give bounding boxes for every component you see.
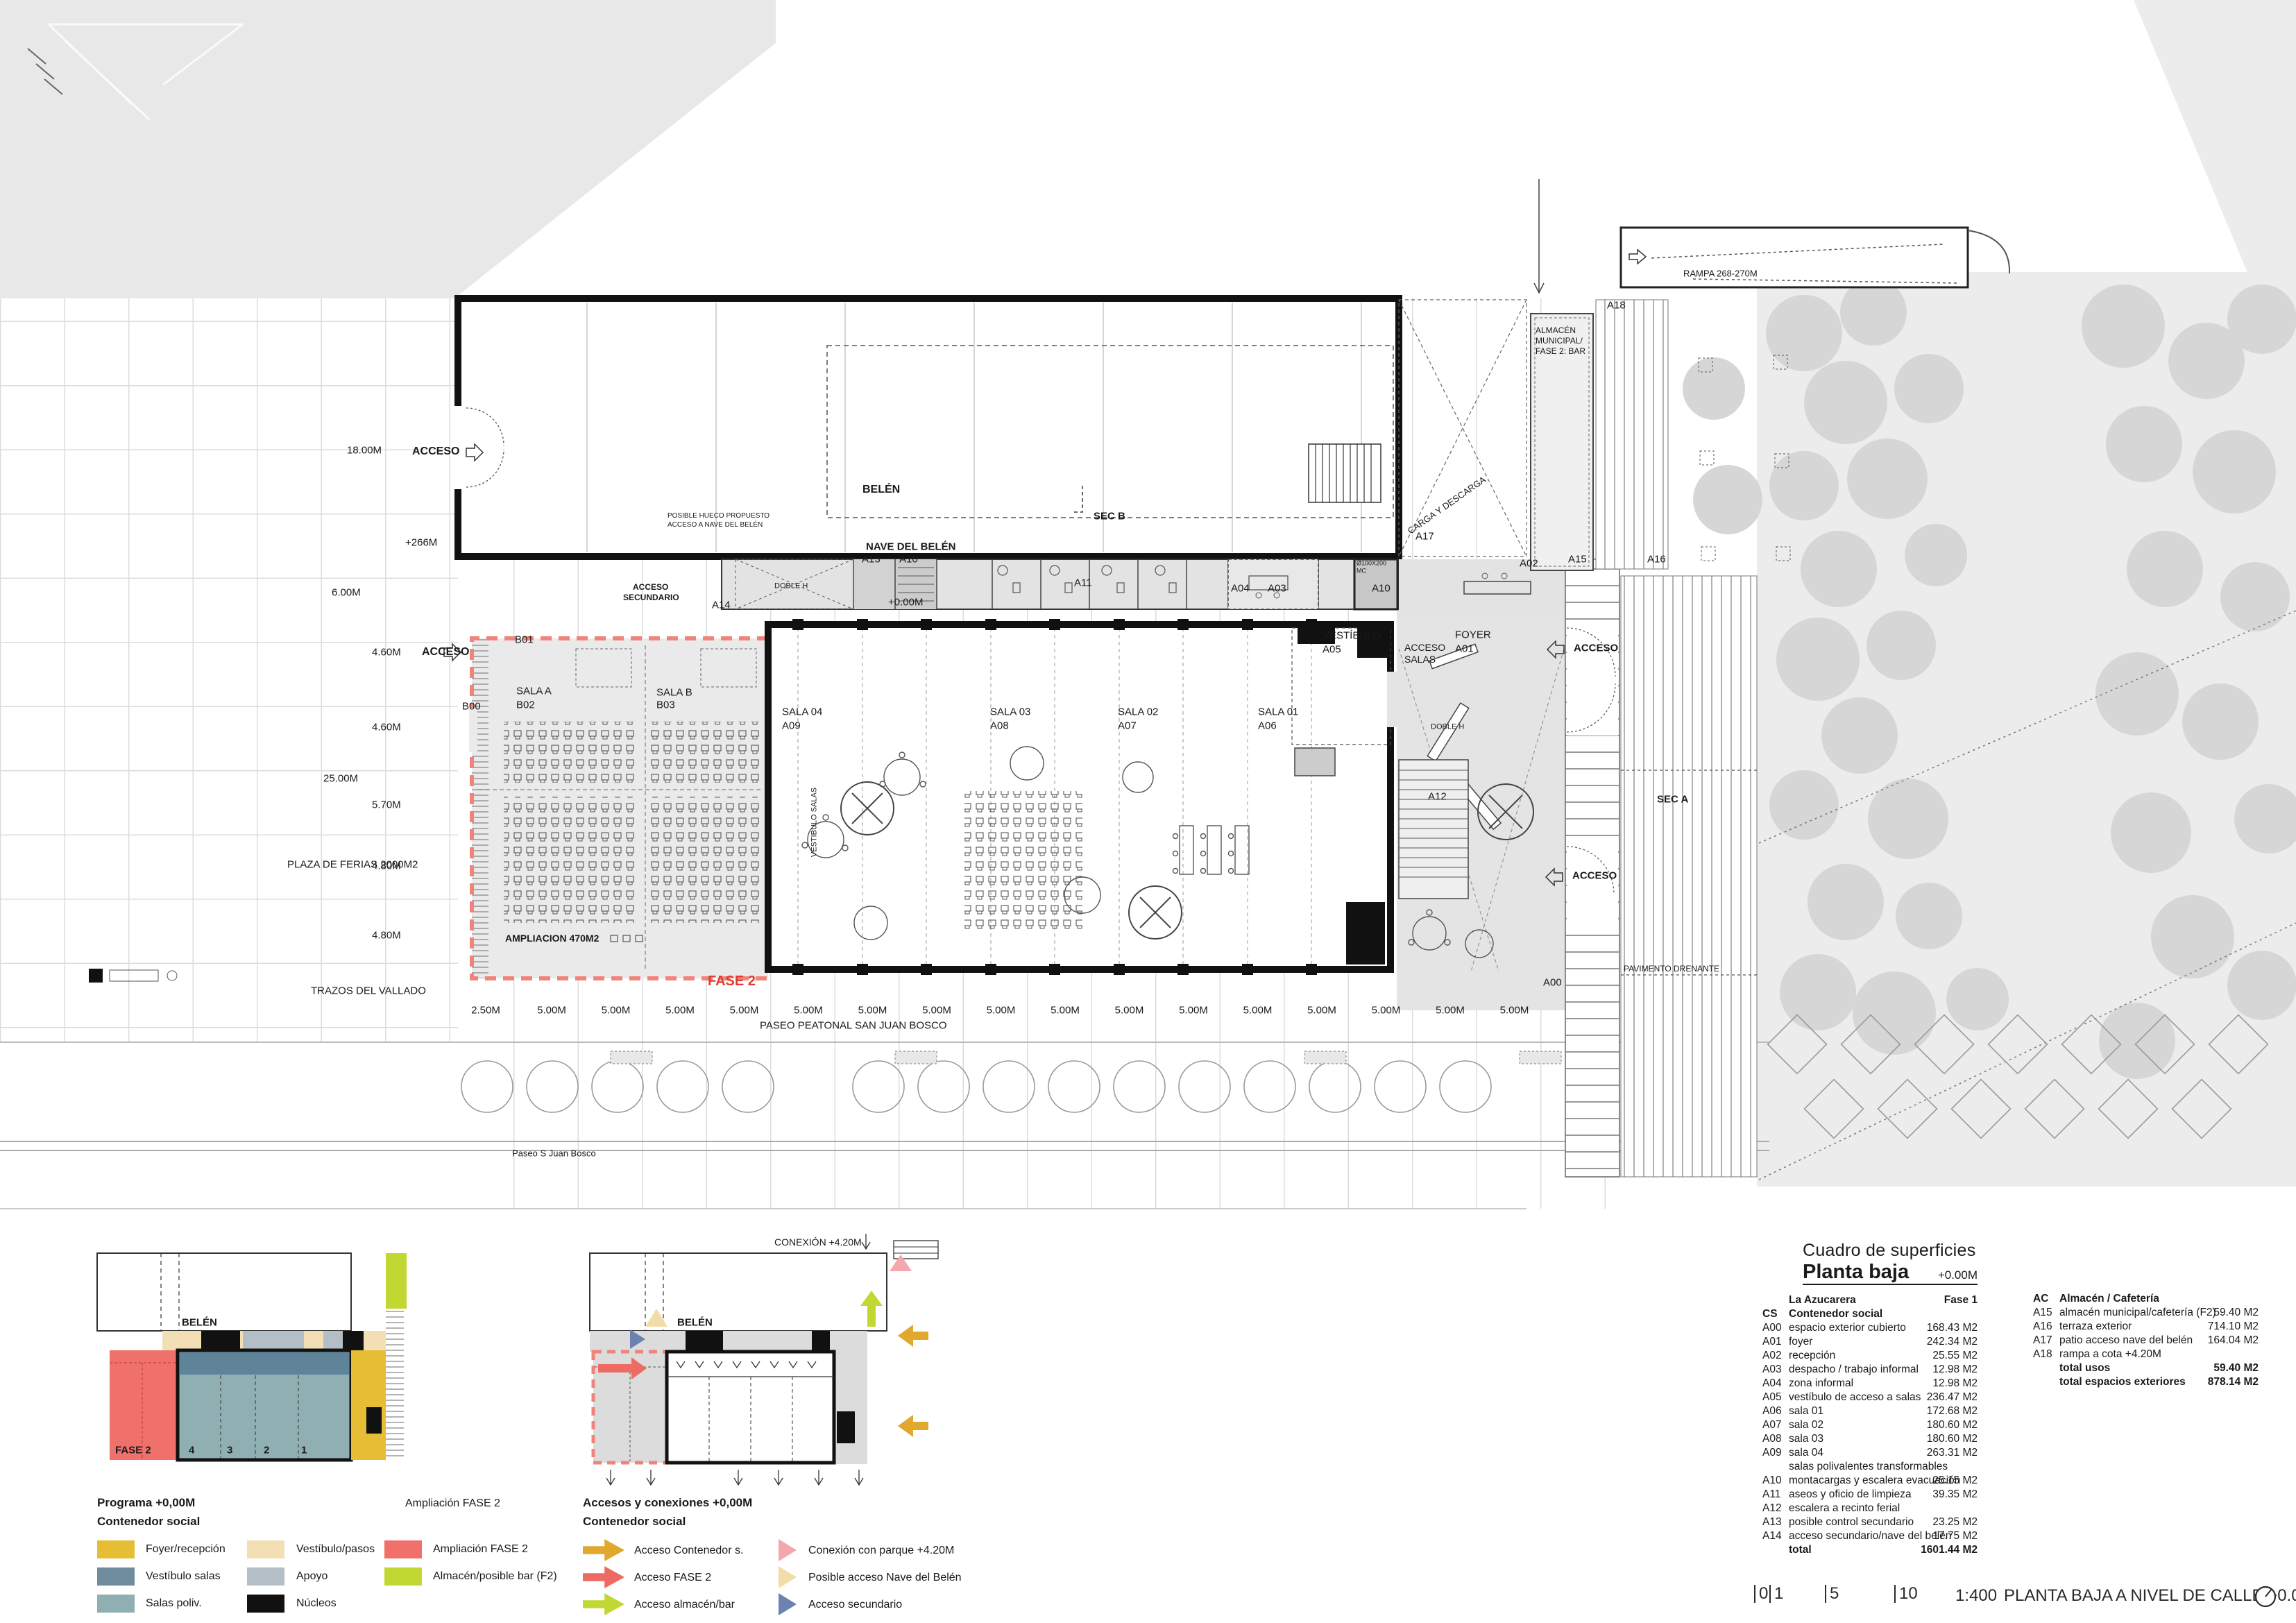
row-code: A16 [2033, 1320, 2054, 1334]
area-table-row: A16terraza exterior714.10 M2 [2033, 1320, 2259, 1334]
legend-item: Acceso secundario [779, 1596, 1027, 1615]
row-code: A01 [1762, 1335, 1783, 1349]
area-table: Cuadro de superficies Planta baja +0.00M… [1762, 1241, 1991, 1284]
row-label: terraza exterior [2059, 1320, 2132, 1334]
area-table-row: A06sala 01172.68 M2 [1762, 1404, 1978, 1418]
row-value: 1601.44 M2 [1921, 1543, 1978, 1557]
area-table-row: A05vestíbulo de acceso a salas236.47 M2 [1762, 1391, 1978, 1404]
row-value: 12.98 M2 [1932, 1363, 1978, 1377]
area-table-row: A01foyer242.34 M2 [1762, 1335, 1978, 1349]
area-table-row: A11aseos y oficio de limpieza39.35 M2 [1762, 1488, 1978, 1502]
area-table-row: A17patio acceso nave del belén164.04 M2 [2033, 1334, 2259, 1348]
row-label: total espacios exteriores [2059, 1375, 2186, 1389]
area-table-row: A14acceso secundario/nave del belén17.75… [1762, 1529, 1978, 1543]
row-label: La Azucarera [1789, 1293, 1856, 1307]
row-label: acceso secundario/nave del belén [1789, 1529, 1951, 1543]
area-table-row: A09sala 04263.31 M2 [1762, 1446, 1978, 1460]
acceso-contenedor-arrow-icon [898, 1415, 928, 1437]
mini-diagram-access [590, 1234, 938, 1485]
access-arrow-icon [583, 1566, 624, 1588]
row-code: A00 [1762, 1321, 1783, 1335]
row-code: AC [2033, 1292, 2054, 1306]
row-value: 59.40 M2 [2213, 1306, 2259, 1320]
scale-ratio: 1:400 [1955, 1586, 1997, 1606]
legend-accesos: Accesos y conexiones +0,00M Contenedor s… [583, 1493, 1027, 1622]
row-value: 39.35 M2 [1932, 1488, 1978, 1502]
legend-label: Acceso Contenedor s. [634, 1545, 743, 1557]
legend-swatch [384, 1567, 422, 1586]
plan-sheet: 18.00MACCESO+266M6.00M4.60MACCESOB01B00S… [0, 0, 2296, 1623]
row-label: sala 01 [1789, 1404, 1823, 1418]
area-table-row: total1601.44 M2 [1762, 1543, 1978, 1557]
legend-label: Conexión con parque +4.20M [808, 1545, 954, 1557]
row-label: aseos y oficio de limpieza [1789, 1488, 1912, 1502]
row-value: 168.43 M2 [1927, 1321, 1978, 1335]
montacargas-a10 [1354, 559, 1397, 609]
row-code: A04 [1762, 1377, 1783, 1391]
row-value: 17.75 M2 [1932, 1529, 1978, 1543]
row-label: posible control secundario [1789, 1515, 1914, 1529]
row-code: A05 [1762, 1391, 1783, 1404]
row-code: A07 [1762, 1418, 1783, 1432]
scale-tick: 5 [1825, 1585, 1839, 1603]
row-value: 180.60 M2 [1927, 1418, 1978, 1432]
row-label: recepción [1789, 1349, 1835, 1363]
access-arrow-icon [583, 1539, 624, 1561]
ramp-a18 [1534, 179, 2009, 293]
cs-rows: La AzucareraFase 1CSContenedor socialA00… [1762, 1293, 1978, 1557]
row-label: rampa a cota +4.20M [2059, 1348, 2161, 1361]
row-value: 12.98 M2 [1932, 1377, 1978, 1391]
legend-label: Acceso secundario [808, 1599, 902, 1611]
acceso-contenedor-arrow-icon [898, 1325, 928, 1347]
area-table-row: A15almacén municipal/cafetería (F2)59.40… [2033, 1306, 2259, 1320]
row-code: A15 [2033, 1306, 2054, 1320]
row-code: A12 [1762, 1502, 1783, 1515]
area-table-row: A18rampa a cota +4.20M [2033, 1348, 2259, 1361]
legend-label: Ampliación FASE 2 [433, 1543, 528, 1556]
ac-rows: ACAlmacén / CafeteríaA15almacén municipa… [2033, 1292, 2259, 1389]
row-code: A02 [1762, 1349, 1783, 1363]
row-label: escalera a recinto ferial [1789, 1502, 1900, 1515]
row-code: A18 [2033, 1348, 2054, 1361]
row-label: despacho / trabajo informal [1789, 1363, 1919, 1377]
scale-tick: 10 [1894, 1585, 1918, 1603]
row-code: A06 [1762, 1404, 1783, 1418]
area-table-level: +0.00M [1908, 1268, 1978, 1282]
area-table-row: CSContenedor social [1762, 1307, 1978, 1321]
row-label: vestíbulo de acceso a salas [1789, 1391, 1921, 1404]
row-label: foyer [1789, 1335, 1812, 1349]
area-table-row: A00espacio exterior cubierto168.43 M2 [1762, 1321, 1978, 1335]
area-table-row: total usos59.40 M2 [2033, 1361, 2259, 1375]
row-label: Contenedor social [1789, 1307, 1882, 1321]
scale-tick: 1 [1769, 1585, 1783, 1603]
area-table-title: Cuadro de superficies [1803, 1241, 1991, 1261]
mini-diagram-program [97, 1253, 407, 1460]
context-upper-left [0, 0, 776, 298]
row-value: 25.15 M2 [1932, 1474, 1978, 1488]
main-hall [768, 619, 1397, 975]
row-label: espacio exterior cubierto [1789, 1321, 1906, 1335]
area-table-row: A03despacho / trabajo informal12.98 M2 [1762, 1363, 1978, 1377]
row-value: 25.55 M2 [1932, 1349, 1978, 1363]
connection-triangle-icon [779, 1566, 797, 1588]
legend-accesos-title: Accesos y conexiones +0,00M Contenedor s… [583, 1493, 1027, 1531]
row-value: 23.25 M2 [1932, 1515, 1978, 1529]
north-circle-icon [2254, 1585, 2277, 1608]
row-label: Almacén / Cafetería [2059, 1292, 2159, 1306]
area-table-row: A07sala 02180.60 M2 [1762, 1418, 1978, 1432]
legend-item: Conexión con parque +4.20M [779, 1542, 1027, 1561]
connection-triangle-icon [779, 1593, 797, 1615]
row-value: 59.40 M2 [2213, 1361, 2259, 1375]
legend-swatch [247, 1595, 284, 1613]
row-label: salas polivalentes transformables [1789, 1460, 1948, 1474]
row-code: A08 [1762, 1432, 1783, 1446]
row-code: A10 [1762, 1474, 1783, 1488]
area-table-row: A13posible control secundario23.25 M2 [1762, 1515, 1978, 1529]
row-value: 172.68 M2 [1927, 1404, 1978, 1418]
legend-label: Acceso almacén/bar [634, 1599, 735, 1611]
legend-item: Posible acceso Nave del Belén [779, 1569, 1027, 1588]
area-table-row: A12escalera a recinto ferial [1762, 1502, 1978, 1515]
access-arrow-icon [583, 1593, 624, 1615]
legend-label: Núcleos [296, 1597, 337, 1610]
nave-del-belen-building [452, 298, 1399, 556]
row-label: sala 02 [1789, 1418, 1823, 1432]
legend-label: Posible acceso Nave del Belén [808, 1572, 962, 1584]
row-label: total [1789, 1543, 1812, 1557]
row-code: A13 [1762, 1515, 1783, 1529]
connection-triangle-icon [779, 1539, 797, 1561]
legend-label: Acceso FASE 2 [634, 1572, 711, 1584]
door-to-foyer-gap [1387, 672, 1397, 727]
park-landscape [1683, 0, 2296, 1187]
area-table-row: salas polivalentes transformables [1762, 1460, 1978, 1474]
row-value: 164.04 M2 [2208, 1334, 2259, 1348]
row-label: total usos [2059, 1361, 2110, 1375]
row-code: A14 [1762, 1529, 1783, 1543]
row-value: 236.47 M2 [1927, 1391, 1978, 1404]
legend-item: Núcleos [97, 1595, 555, 1614]
area-table-row: A10montacargas y escalera evacuación25.1… [1762, 1474, 1978, 1488]
row-value: 714.10 M2 [2208, 1320, 2259, 1334]
area-table-row: A02recepción25.55 M2 [1762, 1349, 1978, 1363]
area-table-row: La AzucareraFase 1 [1762, 1293, 1978, 1307]
plaza-grid-left [0, 298, 458, 1042]
row-value: 878.14 M2 [2208, 1375, 2259, 1389]
almacen-municipal-room [1531, 314, 1593, 570]
row-code: CS [1762, 1307, 1783, 1321]
row-code: A11 [1762, 1488, 1783, 1502]
stair-icon [1309, 444, 1381, 502]
area-table-row: A08sala 03180.60 M2 [1762, 1432, 1978, 1446]
row-label: almacén municipal/cafetería (F2) [2059, 1306, 2216, 1320]
row-code: A09 [1762, 1446, 1783, 1460]
row-code: A03 [1762, 1363, 1783, 1377]
row-label: patio acceso nave del belén [2059, 1334, 2193, 1348]
row-label: sala 03 [1789, 1432, 1823, 1446]
legend-item: Almacén/posible bar (F2) [97, 1567, 555, 1587]
seat-rows [504, 722, 638, 783]
west-entrance-gap [452, 406, 465, 489]
legend-item: Ampliación FASE 2 [97, 1540, 555, 1560]
row-value: 263.31 M2 [1927, 1446, 1978, 1460]
scale-tick: 0 [1754, 1585, 1768, 1603]
row-value: Fase 1 [1944, 1293, 1978, 1307]
area-table-row: A04zona informal12.98 M2 [1762, 1377, 1978, 1391]
services-strip [722, 559, 1565, 611]
row-label: zona informal [1789, 1377, 1853, 1391]
stair-a12 [1399, 760, 1468, 899]
row-value: 242.34 M2 [1927, 1335, 1978, 1349]
area-table-row: total espacios exteriores878.14 M2 [2033, 1375, 2259, 1389]
row-label: sala 04 [1789, 1446, 1823, 1460]
area-table-row: ACAlmacén / Cafetería [2033, 1292, 2259, 1306]
drawing-title: PLANTA BAJA A NIVEL DE CALLE +0.00M [2004, 1586, 2296, 1606]
row-code: A17 [2033, 1334, 2054, 1348]
legend-swatch [384, 1540, 422, 1558]
legend-ampliacion-header: Ampliación FASE 2 [405, 1497, 500, 1510]
legend-label: Almacén/posible bar (F2) [433, 1570, 557, 1583]
legend-programa: Programa +0,00M Contenedor social Amplia… [97, 1493, 555, 1622]
row-value: 180.60 M2 [1927, 1432, 1978, 1446]
fase2-extension [444, 638, 768, 978]
